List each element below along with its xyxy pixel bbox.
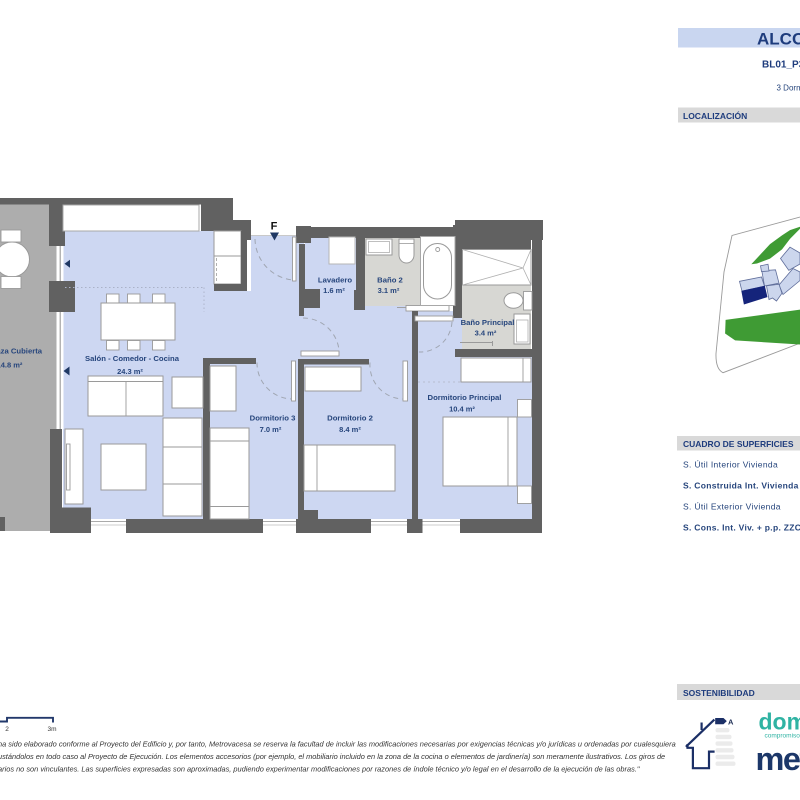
svg-text:Baño Principal: Baño Principal — [461, 318, 515, 327]
svg-text:2: 2 — [5, 726, 9, 733]
svg-text:BL01_P3_3D: BL01_P3_3D — [762, 60, 800, 71]
svg-text:S. Construida Int. Vivienda: S. Construida Int. Vivienda — [683, 481, 799, 491]
svg-text:ALCORA: ALCORA — [757, 30, 800, 49]
svg-text:7.0 m²: 7.0 m² — [260, 425, 282, 434]
svg-text:S. Cons. Int. Viv. + p.p. ZZCC: S. Cons. Int. Viv. + p.p. ZZCC — [683, 523, 800, 533]
svg-text:3.1 m²: 3.1 m² — [378, 286, 400, 295]
svg-text:CUADRO DE SUPERFICIES: CUADRO DE SUPERFICIES — [683, 439, 794, 449]
svg-text:Baño 2: Baño 2 — [377, 276, 403, 285]
svg-text:3m: 3m — [47, 726, 56, 733]
svg-text:8.4 m²: 8.4 m² — [339, 425, 361, 434]
svg-text:10.4 m²: 10.4 m² — [449, 405, 475, 414]
svg-text:F: F — [271, 221, 278, 233]
svg-text:LOCALIZACIÓN: LOCALIZACIÓN — [683, 110, 747, 121]
svg-text:Dormitorio 2: Dormitorio 2 — [327, 414, 373, 423]
svg-text:Salón - Comedor - Cocina: Salón - Comedor - Cocina — [85, 354, 180, 363]
svg-text:compromiso: compromiso — [765, 733, 800, 740]
svg-text:arios no son vinculantes. Las: arios no son vinculantes. Las superficie… — [0, 765, 640, 774]
svg-text:S. Útil Interior Vivienda: S. Útil Interior Vivienda — [683, 460, 778, 470]
svg-text:metrovacesa: metrovacesa — [756, 741, 800, 777]
svg-text:Dormitorio 3: Dormitorio 3 — [250, 414, 296, 423]
svg-text:3 Dormitorios: 3 Dormitorios — [777, 84, 800, 93]
svg-text:S. Útil Exterior Vivienda: S. Útil Exterior Vivienda — [683, 502, 781, 512]
svg-text:ha sido elaborado conforme al: ha sido elaborado conforme al Proyecto d… — [0, 740, 676, 749]
svg-text:SOSTENIBILIDAD: SOSTENIBILIDAD — [683, 688, 755, 698]
svg-text:ustándolos en todo caso al Pro: ustándolos en todo caso al Proyecto de E… — [0, 752, 665, 761]
svg-text:24.3 m²: 24.3 m² — [117, 367, 143, 376]
svg-text:Terraza Cubierta: Terraza Cubierta — [0, 347, 43, 356]
svg-text:1.6 m²: 1.6 m² — [323, 286, 345, 295]
svg-text:Lavadero: Lavadero — [318, 276, 352, 285]
svg-text:14.8 m²: 14.8 m² — [0, 361, 23, 370]
svg-text:A: A — [728, 718, 734, 727]
svg-text:dommum: dommum — [759, 709, 800, 735]
svg-text:3.4 m²: 3.4 m² — [475, 329, 497, 338]
svg-text:Dormitorio Principal: Dormitorio Principal — [428, 393, 502, 402]
